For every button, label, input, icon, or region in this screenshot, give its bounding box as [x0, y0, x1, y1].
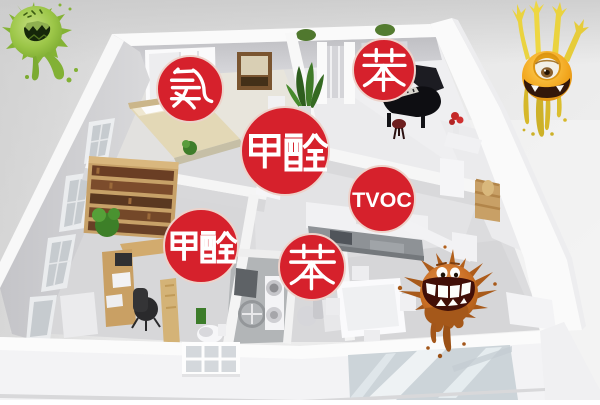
svg-text:TVOC: TVOC	[352, 188, 412, 212]
